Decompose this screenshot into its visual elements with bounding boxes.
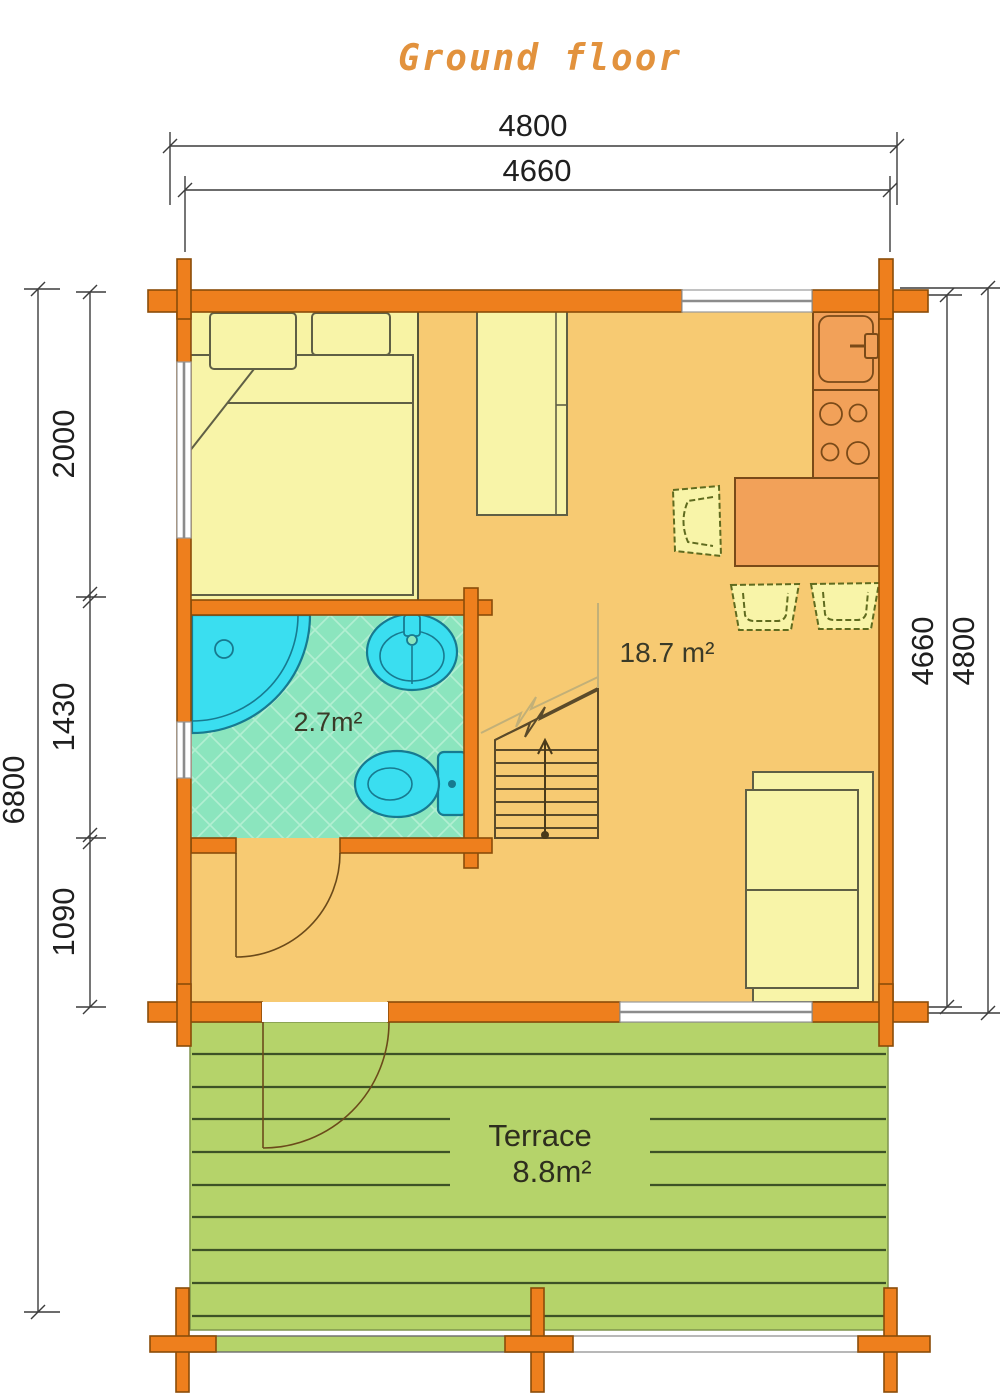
dining-table [735,478,886,566]
washbasin-icon [367,614,457,690]
bed [189,313,413,595]
dim-label-6800: 6800 [0,756,31,825]
dim-label-1090: 1090 [46,888,81,957]
log-post-bottom-left [177,984,191,1046]
terrace: Terrace 8.8m² [150,1022,930,1392]
terrace-door-opening [262,1002,388,1022]
faucet-icon [865,334,878,358]
dim-label-4800-top: 4800 [499,108,568,143]
living-area-label: 18.7 m² [620,637,715,668]
stove-top [813,390,879,478]
dimension-left-chain: 2000 1430 1090 [46,285,106,1014]
south-wall-middle [388,1002,620,1022]
sofa [746,772,873,1002]
floor-plan-page: Ground floor 4800 4660 [0,0,1000,1396]
terrace-name-label: Terrace [488,1118,591,1153]
dining-chair-bottom-2 [811,583,879,629]
bathroom-wall-east [464,588,478,868]
log-post-top-left [177,259,191,319]
dim-label-4660-right: 4660 [905,617,940,686]
bathroom-area-label: 2.7m² [293,707,362,737]
dining-chair-left [673,486,721,556]
dining-chair-bottom-1 [731,584,799,630]
north-wall-right [812,290,928,312]
bed-mattress [189,355,413,595]
kitchen-sink-counter [813,312,879,390]
bathroom-wall-north [191,600,492,615]
dim-label-4800-right: 4800 [946,617,981,686]
south-wall-right [812,1002,928,1022]
dim-label-1430: 1430 [46,683,81,752]
wardrobe-body [477,305,567,515]
east-wall [879,312,893,1002]
terrace-rail-right [545,1336,885,1352]
pillow-right [312,313,390,355]
dim-label-2000: 2000 [46,410,81,479]
log-post-top-right [879,259,893,319]
north-wall-left [148,290,682,312]
log-post-bottom-right [879,984,893,1046]
wardrobe [477,305,567,515]
floor-plan-drawing: 4800 4660 6800 [0,0,1000,1396]
dimension-top-inner: 4660 [178,153,897,252]
terrace-rail-left [190,1336,535,1352]
pillow-left [210,313,296,369]
toilet-icon [355,751,467,817]
terrace-area-label: 8.8m² [512,1154,591,1189]
stove [813,390,879,478]
bathroom-wall-south-left [191,838,236,853]
dim-label-4660-top: 4660 [503,153,572,188]
south-wall-left [148,1002,262,1022]
bathroom-wall-south-right [340,838,492,853]
